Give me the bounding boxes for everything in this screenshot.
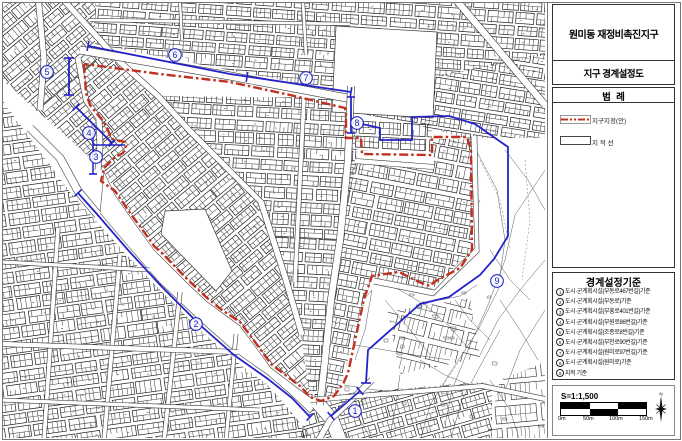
svg-text:N: N xyxy=(659,392,662,397)
